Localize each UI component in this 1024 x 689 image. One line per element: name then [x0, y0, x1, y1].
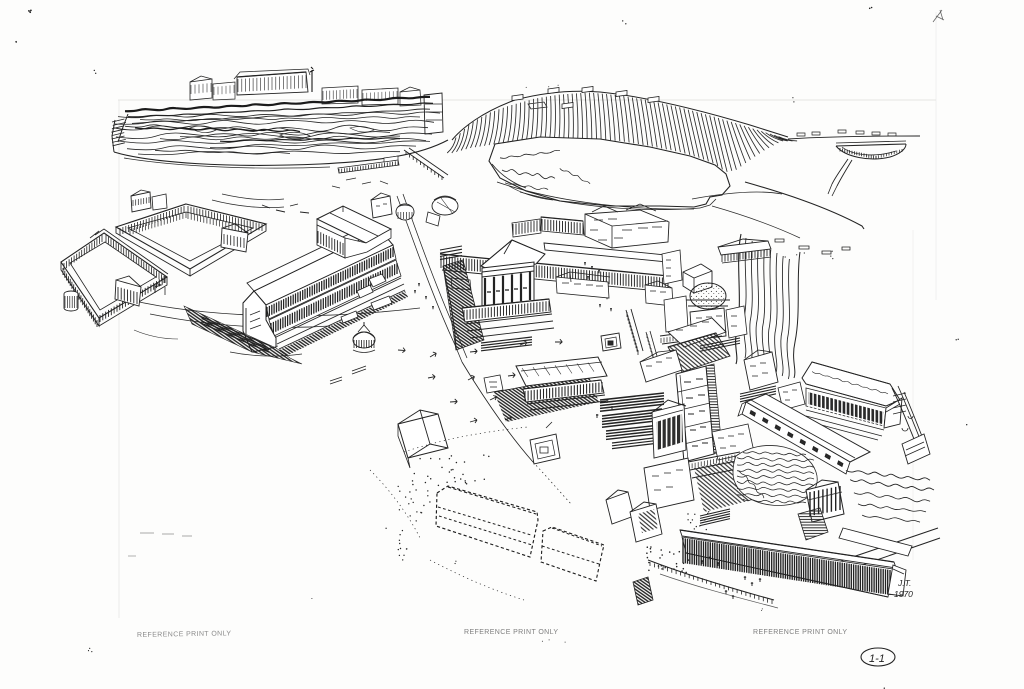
svg-text:1-1: 1-1 [869, 653, 885, 665]
svg-text:J.T.: J.T. [897, 578, 911, 588]
svg-text:REFERENCE PRINT ONLY: REFERENCE PRINT ONLY [464, 629, 558, 636]
svg-text:1970: 1970 [894, 589, 913, 599]
svg-text:REFERENCE PRINT ONLY: REFERENCE PRINT ONLY [753, 629, 847, 636]
